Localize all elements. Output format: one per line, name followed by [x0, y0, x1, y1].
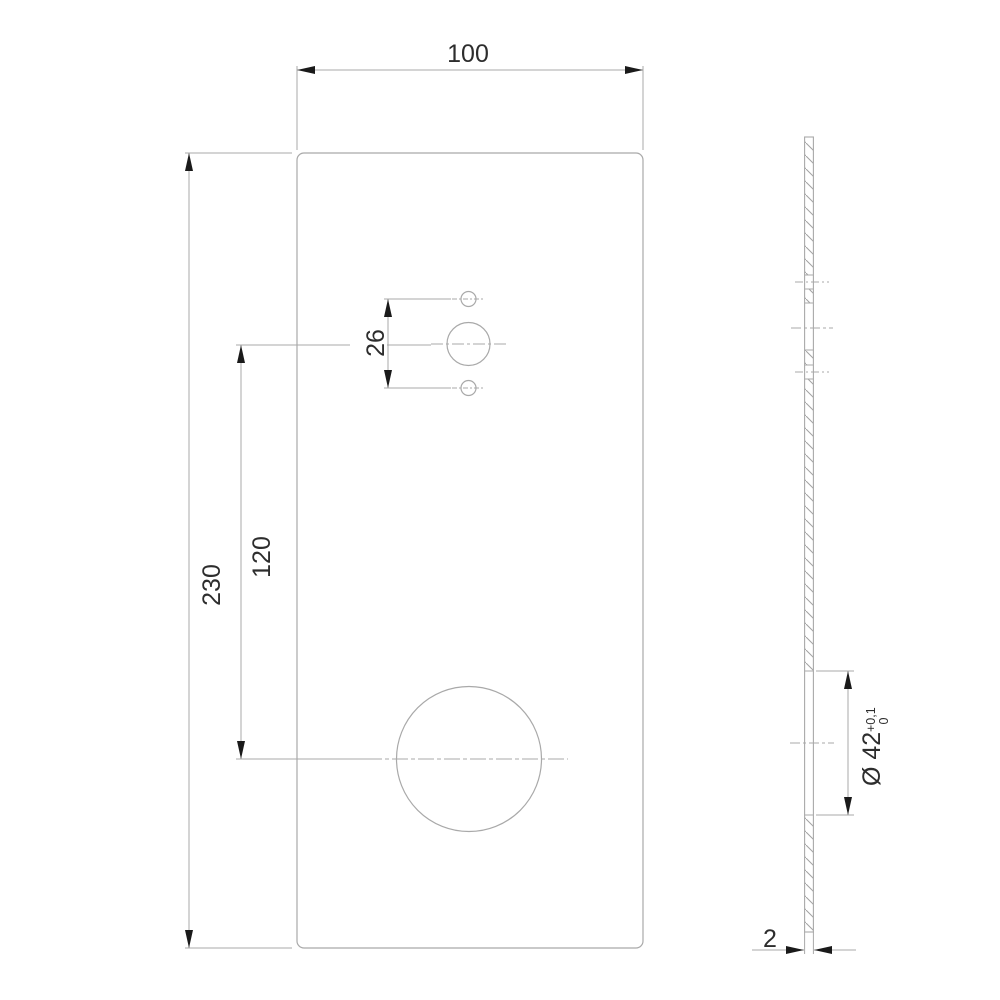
dimension-label-large-hole: Ø 42 +0,1 0	[858, 707, 891, 786]
dimension-label-tolerance-upper: +0,1	[864, 707, 878, 732]
arrowhead-down	[844, 797, 852, 815]
arrowhead-left	[814, 946, 832, 954]
dimension-hole-center-distance: 120	[236, 345, 431, 759]
dimension-label-plate-height: 230	[198, 564, 226, 606]
front-view	[297, 153, 643, 948]
technical-drawing: 100 230 120 26	[0, 0, 1000, 1000]
arrowhead-right	[625, 66, 643, 74]
arrowhead-right	[786, 946, 804, 954]
dimension-label-plate-thickness: 2	[763, 925, 777, 953]
front-view-centerlines	[366, 299, 568, 759]
arrowhead-up	[185, 153, 193, 171]
arrowhead-up	[237, 345, 245, 363]
dimension-label-plate-width: 100	[447, 40, 489, 68]
arrowhead-up	[384, 299, 392, 317]
dimension-label-diameter-value: Ø 42	[858, 732, 886, 786]
dimension-label-tolerance-lower: 0	[877, 718, 891, 725]
drawing-canvas: 100 230 120 26	[0, 0, 1000, 1000]
side-view	[790, 137, 834, 932]
dimension-plate-thickness: 2	[752, 925, 856, 954]
dimension-label-hole-center-distance: 120	[248, 536, 276, 578]
dimension-label-small-hole-spacing: 26	[362, 329, 390, 357]
dimension-large-hole-diameter: Ø 42 +0,1 0	[816, 671, 891, 815]
arrowhead-down	[185, 930, 193, 948]
arrowhead-down	[384, 370, 392, 388]
plate-outline	[297, 153, 643, 948]
dimension-plate-width: 100	[297, 40, 643, 150]
arrowhead-down	[237, 741, 245, 759]
arrowhead-left	[297, 66, 315, 74]
section-hatching	[805, 137, 814, 932]
arrowhead-up	[844, 671, 852, 689]
